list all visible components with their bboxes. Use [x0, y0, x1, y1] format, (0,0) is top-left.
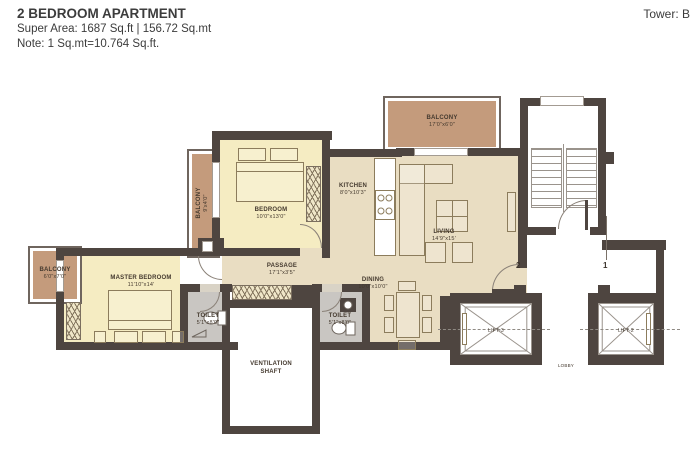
stairwell-window — [540, 96, 584, 106]
tv-unit — [507, 192, 516, 232]
stairwell-door-leaf — [585, 200, 588, 230]
wall — [362, 284, 370, 350]
wall — [604, 152, 614, 164]
entrance-door-leaf — [492, 289, 520, 293]
wall — [56, 248, 198, 256]
grid-marker-2: 2 — [516, 261, 520, 270]
chair-symbol — [384, 295, 394, 311]
toilet-master-label: TOILET5'1"x8'0" — [188, 311, 228, 329]
window-living-balcony — [414, 148, 468, 156]
grid-marker-1: 1 — [603, 261, 607, 270]
wall — [326, 149, 402, 157]
chair-symbol — [398, 340, 416, 350]
wall — [396, 148, 416, 156]
wall — [222, 426, 320, 434]
bed-pillow — [142, 331, 166, 343]
stair-flight-left — [531, 148, 562, 208]
bed-symbol — [236, 162, 304, 202]
chair-symbol — [422, 317, 432, 333]
wall — [230, 300, 312, 308]
door-gap-toilet-common — [322, 284, 342, 292]
passage-label: PASSAGE17'1"x3'5" — [238, 259, 326, 281]
chair-symbol — [422, 295, 432, 311]
window-bedroom-balcony — [212, 162, 220, 218]
bed-fold-line — [236, 171, 304, 172]
dining-table — [396, 292, 420, 338]
stove-icon — [375, 190, 395, 220]
bedroom-label: BEDROOM10'0"x13'0" — [226, 203, 316, 225]
wall — [222, 248, 300, 256]
wardrobe-passage — [232, 285, 292, 300]
kitchen-label: KITCHEN8'0"x10'3" — [332, 179, 374, 201]
bedside-table — [172, 331, 184, 343]
chair-symbol — [398, 281, 416, 291]
wall — [312, 284, 320, 434]
lift-2-label: LIFT-2 — [598, 326, 654, 336]
page-title: 2 BEDROOM APARTMENT — [17, 6, 186, 21]
wall — [322, 140, 330, 258]
lift-3-label: LIFT-3 — [466, 326, 526, 336]
bed-fold-line — [108, 320, 172, 321]
balcony-lower-left-label: BALCONY6'0"x7'0" — [33, 263, 77, 285]
table-line — [436, 216, 468, 217]
stair-flight-right — [566, 148, 597, 208]
door-gap-bedroom — [300, 248, 322, 256]
lobby-label: LOBBY — [548, 362, 584, 370]
master-bedroom-door-arc — [198, 256, 222, 280]
wall — [312, 342, 458, 350]
wall — [56, 342, 238, 350]
living-label: LIVING14'9"x15' — [402, 225, 486, 247]
wall — [312, 284, 322, 292]
super-area-text: Super Area: 1687 Sq.ft | 156.72 Sq.mt — [17, 23, 211, 35]
balcony-upper-left-label: BALCONY9'x4'0" — [195, 173, 211, 233]
grid-line-1 — [606, 216, 607, 260]
toilet-common-label: TOILET5'1"x8'0" — [318, 311, 362, 329]
bed-pillow — [270, 148, 298, 161]
bed-symbol — [108, 290, 172, 330]
bedside-table — [94, 331, 106, 343]
bed-pillow — [114, 331, 138, 343]
wardrobe-master-bedroom — [66, 302, 81, 340]
stair-divider — [563, 144, 564, 212]
conversion-note: Note: 1 Sq.mt=10.764 Sq.ft. — [17, 38, 159, 50]
chair-symbol — [384, 317, 394, 333]
tower-label: Tower: B — [643, 7, 690, 21]
dining-label: DINING10'0"x10'0" — [350, 275, 396, 293]
floor-plan-page: { "header": { "title": "2 BEDROOM APARTM… — [0, 0, 699, 455]
bed-pillow — [238, 148, 266, 161]
master-bedroom-label: MASTER BEDROOM11'10"x14' — [86, 272, 196, 292]
balcony-top-label: BALCONY17'0"x6'0" — [393, 110, 491, 134]
window — [202, 241, 213, 252]
wall — [212, 131, 332, 140]
door-gap-toilet-master — [200, 284, 220, 292]
wall — [656, 248, 664, 294]
ventilation-shaft-label: VENTILATION SHAFT — [241, 356, 301, 380]
